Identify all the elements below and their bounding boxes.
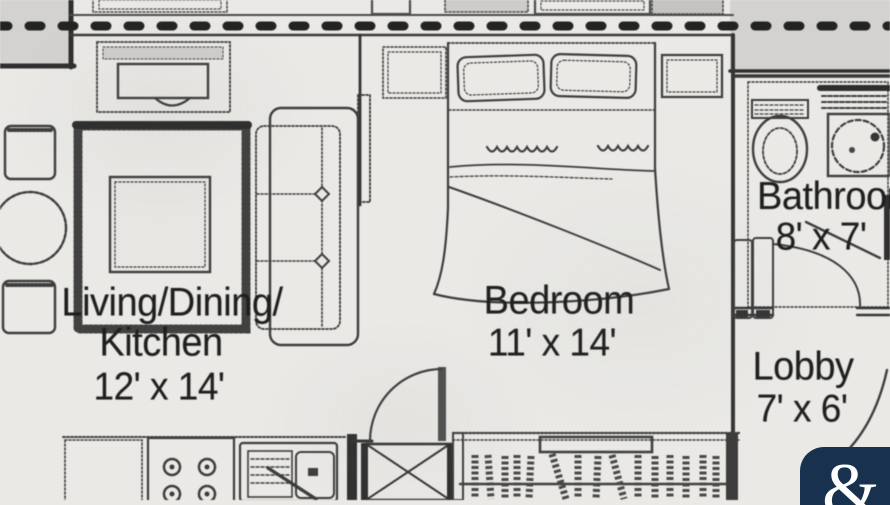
coffee-table-icon (110, 177, 210, 272)
shaft-icon (361, 443, 454, 500)
room-dims-bathroom: 8' x 7' (821, 216, 890, 259)
pillow-icon (457, 55, 544, 102)
shaded-area-top-left (0, 0, 74, 68)
stove-icon (148, 438, 234, 500)
adjacent-unit-furniture (93, 0, 723, 14)
ampersand-logo-icon: & (822, 453, 880, 505)
bed-icon (434, 43, 669, 303)
toilet-icon (752, 100, 808, 182)
room-label-bedroom: Bedroom (559, 280, 710, 324)
wardrobe-icon (453, 433, 740, 500)
room-label-lobby: Lobby (803, 346, 890, 390)
dresser-icon (662, 55, 722, 97)
kitchen-sink-icon (240, 443, 337, 500)
room-dims-bedroom: 11' x 14' (552, 322, 680, 365)
armchair-icon (3, 281, 55, 333)
room-dims-living: 12' x 14' (159, 366, 290, 409)
pillow-icon (550, 54, 636, 98)
brand-watermark: & (800, 447, 890, 505)
room-dims-lobby: 7' x 6' (802, 388, 890, 431)
room-label-bathroom: Bathroom (757, 176, 890, 220)
armchair-icon (5, 126, 55, 179)
nightstand-icon (383, 47, 446, 98)
room-label-living-line2: Kitchen (161, 322, 284, 366)
bedroom-door-swing-icon (370, 367, 446, 441)
floor-plan: Living/Dining/ Kitchen 12' x 14' Bedroom… (0, 0, 890, 500)
shelf-icon (820, 88, 890, 108)
round-table-icon (0, 192, 66, 264)
shaded-area-top-right (730, 0, 890, 71)
sink-vanity-icon (828, 114, 890, 176)
room-label-living-line1: Living/Dining/ (172, 282, 393, 326)
tv-unit-icon (97, 42, 230, 112)
